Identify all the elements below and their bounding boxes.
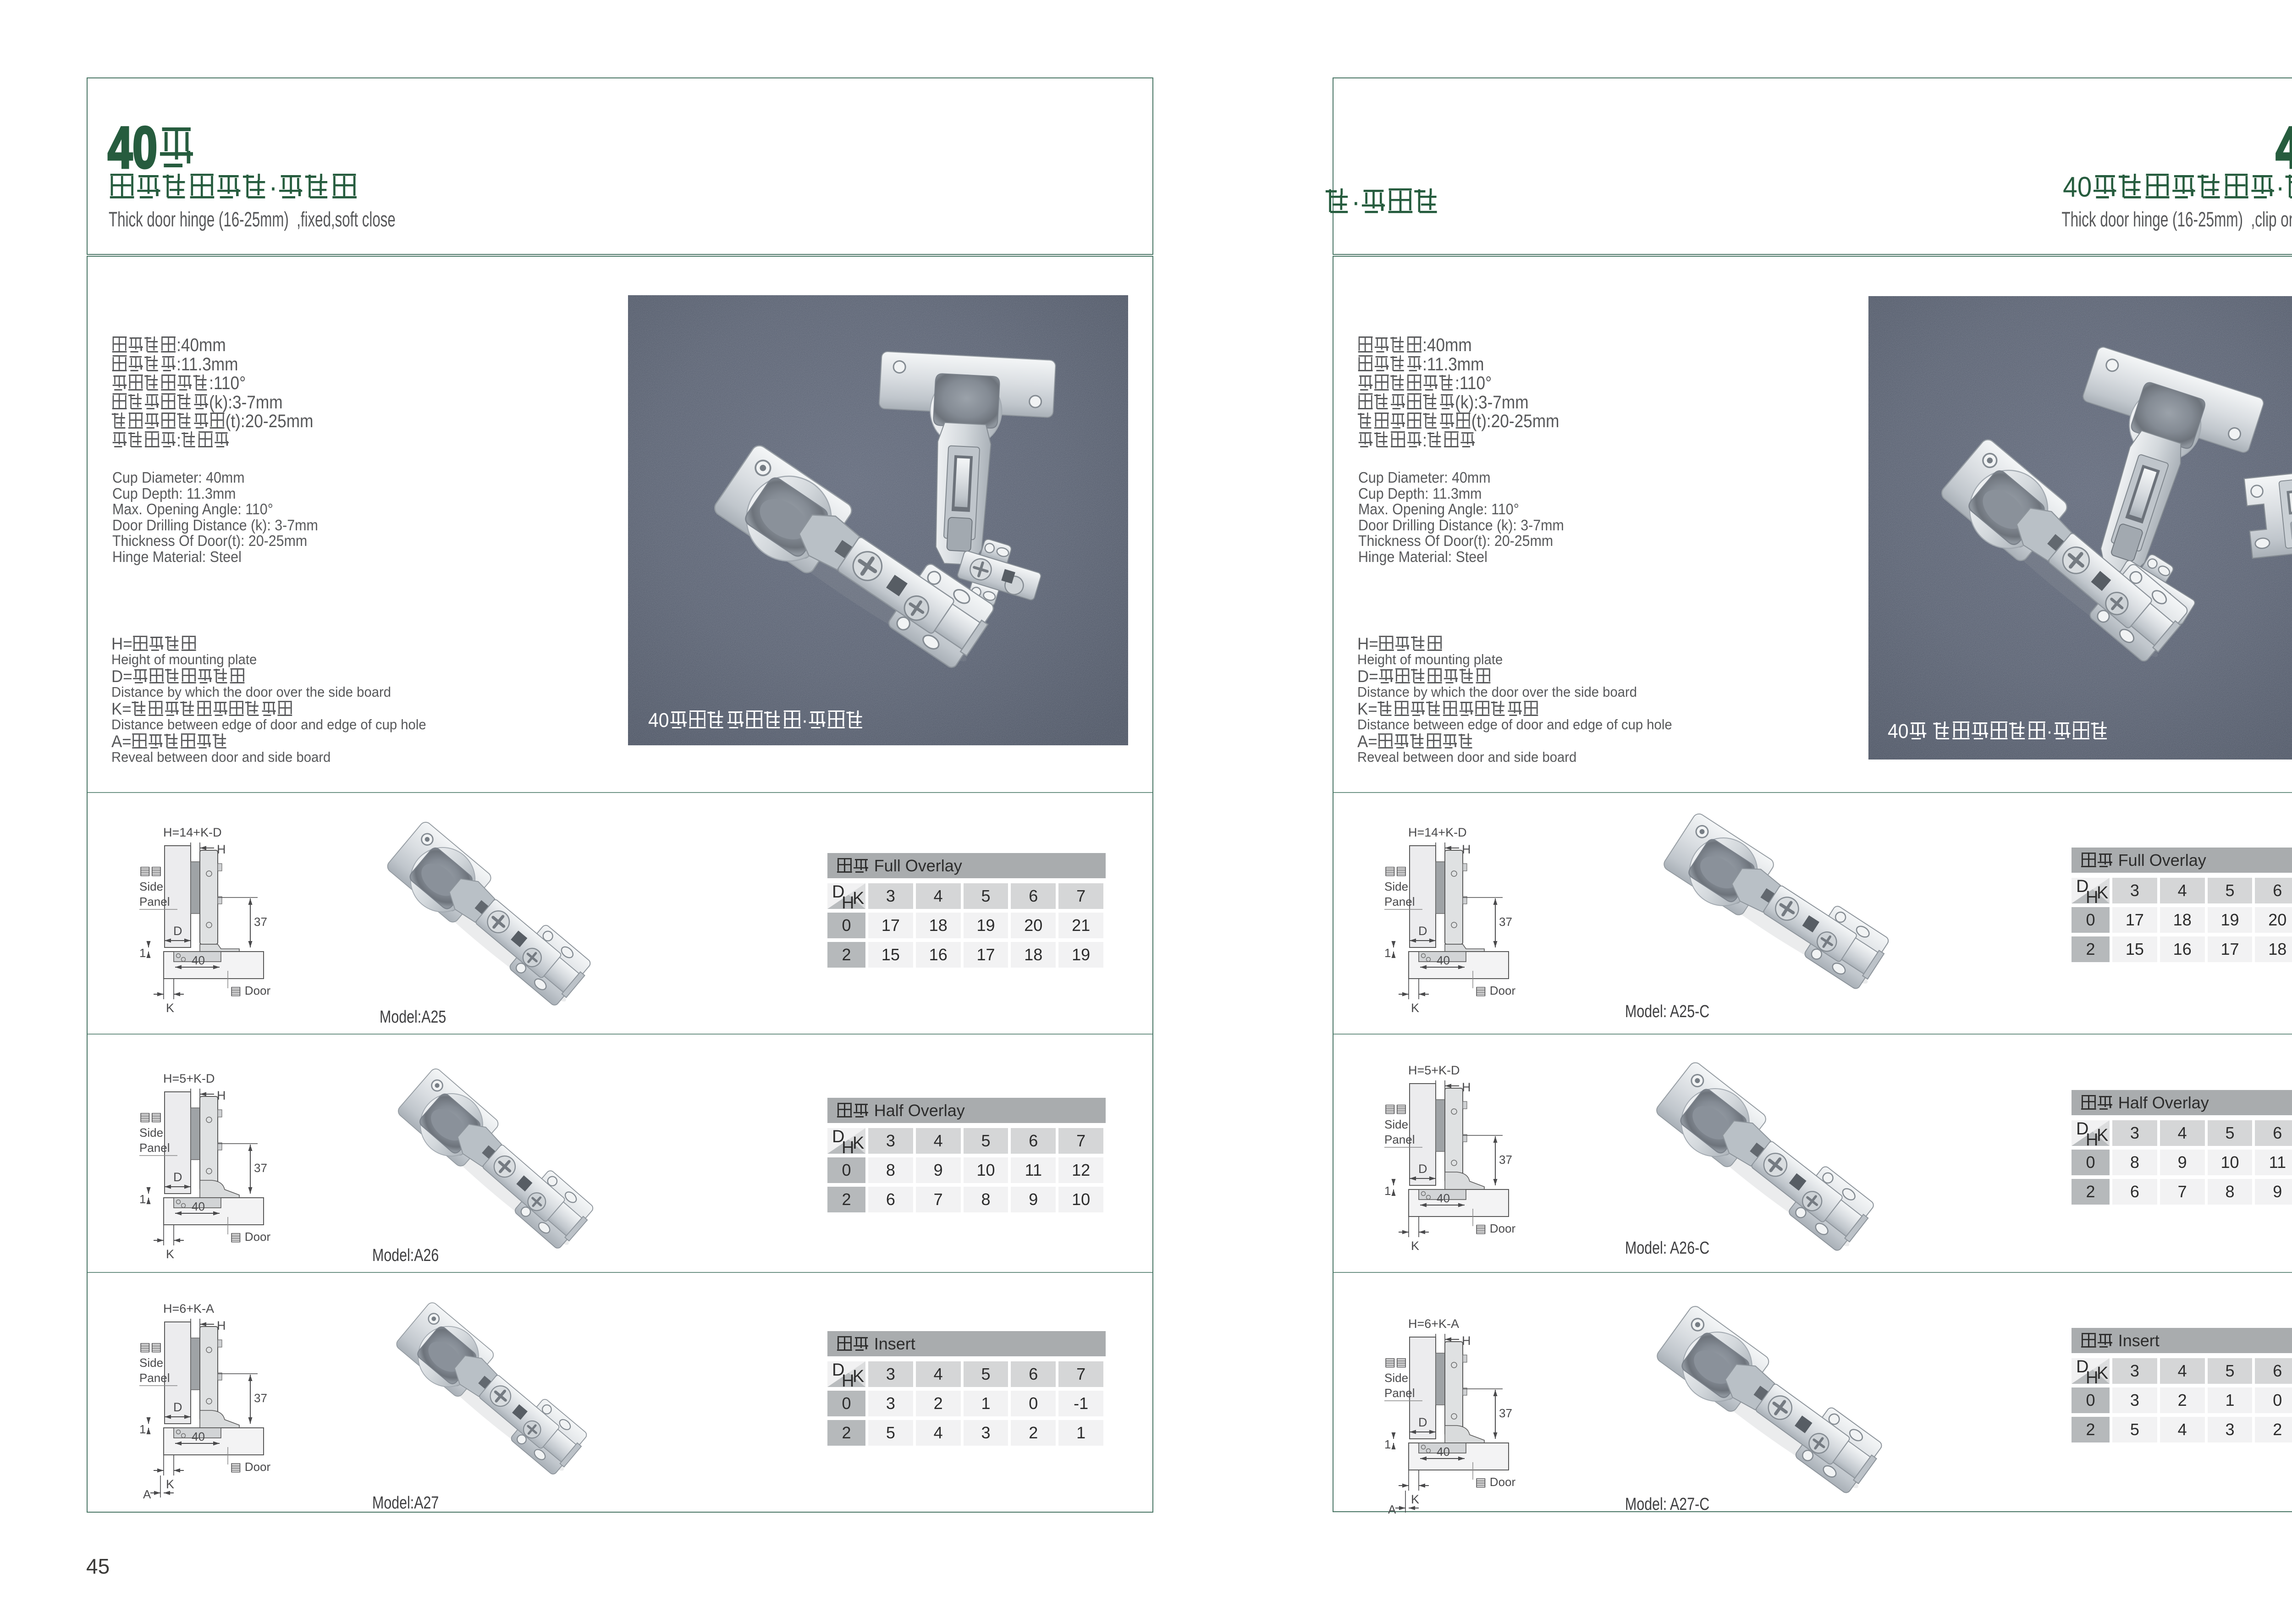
svg-text:1: 1: [1384, 946, 1391, 960]
svg-text:D: D: [173, 1170, 182, 1184]
svg-text:▤▤: ▤▤: [139, 864, 162, 877]
svg-text:H: H: [2086, 1130, 2098, 1146]
svg-text:K: K: [166, 1247, 174, 1261]
svg-text:K: K: [2097, 1364, 2108, 1383]
svg-text:K: K: [1411, 1239, 1419, 1253]
svg-text:1: 1: [139, 946, 146, 960]
svg-text:A: A: [1388, 1503, 1396, 1516]
svg-text:K: K: [2097, 1126, 2108, 1145]
svg-text:D: D: [173, 924, 182, 938]
svg-text:40: 40: [192, 953, 205, 967]
svg-text:K: K: [853, 1134, 864, 1153]
svg-text:H: H: [842, 1371, 854, 1387]
svg-text:K: K: [166, 1001, 174, 1015]
svg-text:Panel: Panel: [139, 1371, 170, 1385]
svg-text:40: 40: [192, 1430, 205, 1443]
svg-text:▤▤: ▤▤: [1384, 1355, 1407, 1369]
svg-text:▤ Door: ▤ Door: [230, 984, 270, 997]
svg-text:Panel: Panel: [139, 1141, 170, 1155]
svg-text:H=14+K-D: H=14+K-D: [1408, 826, 1467, 839]
svg-text:H: H: [842, 893, 854, 909]
svg-text:H: H: [842, 1138, 854, 1154]
svg-text:37: 37: [254, 915, 267, 929]
svg-text:Panel: Panel: [1384, 1133, 1415, 1146]
svg-text:37: 37: [1499, 1153, 1512, 1167]
svg-text:1: 1: [1384, 1184, 1391, 1198]
svg-text:K: K: [2097, 883, 2108, 903]
svg-text:K: K: [1411, 1492, 1419, 1506]
svg-text:Side: Side: [1384, 1118, 1408, 1131]
svg-text:▤ Door: ▤ Door: [230, 1460, 270, 1474]
svg-text:Side: Side: [1384, 880, 1408, 893]
svg-text:▤▤: ▤▤: [139, 1340, 162, 1354]
svg-text:Side: Side: [1384, 1371, 1408, 1385]
svg-text:K: K: [166, 1477, 174, 1491]
svg-text:▤ Door: ▤ Door: [230, 1230, 270, 1244]
svg-text:K: K: [853, 1367, 864, 1386]
svg-text:D: D: [1418, 1162, 1427, 1176]
svg-text:Side: Side: [139, 1356, 163, 1370]
svg-text:Side: Side: [139, 880, 163, 893]
svg-text:▤ Door: ▤ Door: [1475, 984, 1515, 997]
svg-text:▤▤: ▤▤: [1384, 1101, 1407, 1115]
svg-text:Panel: Panel: [1384, 1386, 1415, 1400]
svg-text:A: A: [143, 1487, 151, 1501]
svg-text:H: H: [2086, 888, 2098, 903]
svg-text:Panel: Panel: [139, 895, 170, 908]
svg-text:H=14+K-D: H=14+K-D: [163, 826, 222, 839]
svg-text:H=6+K-A: H=6+K-A: [1408, 1317, 1459, 1331]
svg-text:▤▤: ▤▤: [1384, 864, 1407, 877]
svg-text:1: 1: [139, 1192, 146, 1206]
svg-text:D: D: [173, 1400, 182, 1414]
svg-text:37: 37: [1499, 1406, 1512, 1420]
svg-text:▤▤: ▤▤: [139, 1110, 162, 1123]
svg-text:▤ Door: ▤ Door: [1475, 1222, 1515, 1235]
svg-text:40: 40: [1437, 953, 1450, 967]
svg-text:H=5+K-D: H=5+K-D: [1408, 1063, 1460, 1077]
svg-text:37: 37: [254, 1161, 267, 1175]
svg-text:40: 40: [1437, 1191, 1450, 1205]
svg-text:37: 37: [254, 1391, 267, 1405]
svg-text:H=6+K-A: H=6+K-A: [163, 1302, 214, 1316]
svg-text:K: K: [1411, 1001, 1419, 1015]
svg-text:D: D: [1418, 924, 1427, 938]
svg-text:H=5+K-D: H=5+K-D: [163, 1072, 215, 1085]
svg-text:1: 1: [139, 1422, 146, 1436]
svg-text:37: 37: [1499, 915, 1512, 929]
svg-text:Side: Side: [139, 1126, 163, 1140]
svg-text:40: 40: [192, 1200, 205, 1213]
svg-text:1: 1: [1384, 1437, 1391, 1451]
svg-text:K: K: [853, 889, 864, 908]
svg-text:Panel: Panel: [1384, 895, 1415, 908]
svg-text:D: D: [1418, 1415, 1427, 1429]
svg-text:40: 40: [1437, 1445, 1450, 1459]
svg-text:▤ Door: ▤ Door: [1475, 1475, 1515, 1489]
svg-text:H: H: [2086, 1368, 2098, 1384]
